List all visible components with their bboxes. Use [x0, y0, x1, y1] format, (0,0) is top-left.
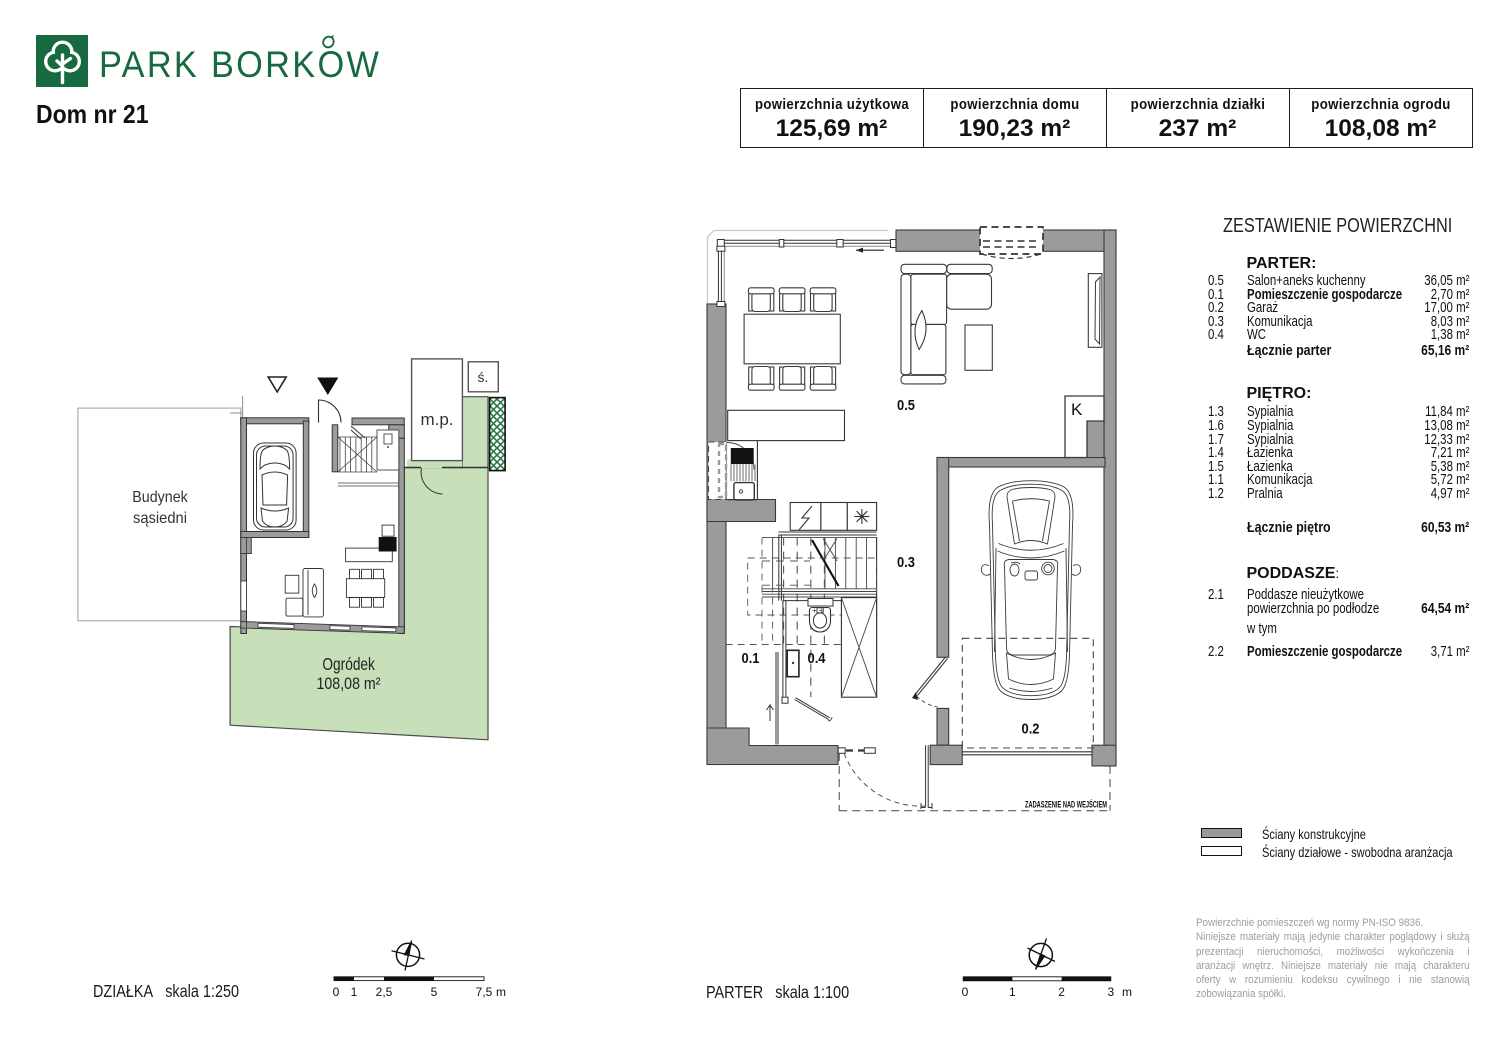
svg-text:5: 5: [431, 985, 438, 999]
svg-text:m: m: [1122, 985, 1132, 999]
svg-text:ś.: ś.: [478, 369, 489, 385]
svg-text:sąsiedni: sąsiedni: [133, 510, 187, 527]
svg-text:108,08 m²: 108,08 m²: [317, 675, 381, 693]
svg-text:K: K: [1071, 400, 1083, 419]
svg-text:0.1: 0.1: [742, 651, 760, 667]
svg-text:0.5: 0.5: [897, 398, 915, 414]
svg-text:m: m: [496, 985, 506, 999]
svg-text:0: 0: [333, 985, 340, 999]
svg-text:2,5: 2,5: [376, 985, 393, 999]
svg-text:m.p.: m.p.: [420, 410, 453, 429]
svg-text:ZADASZENIE NAD WEJŚCIEM: ZADASZENIE NAD WEJŚCIEM: [1025, 799, 1107, 810]
svg-text:Budynek: Budynek: [132, 489, 188, 506]
svg-text:0.4: 0.4: [808, 651, 826, 667]
svg-text:0.2: 0.2: [1022, 722, 1040, 738]
svg-text:3: 3: [1107, 985, 1114, 999]
svg-text:7,5: 7,5: [476, 985, 493, 999]
svg-text:1: 1: [351, 985, 358, 999]
svg-text:+ +: + +: [812, 606, 824, 615]
svg-text:0.3: 0.3: [897, 555, 915, 571]
svg-text:2: 2: [1058, 985, 1065, 999]
svg-text:1: 1: [1009, 985, 1016, 999]
svg-text:Ogródek: Ogródek: [322, 654, 375, 674]
svg-text:0: 0: [962, 985, 969, 999]
